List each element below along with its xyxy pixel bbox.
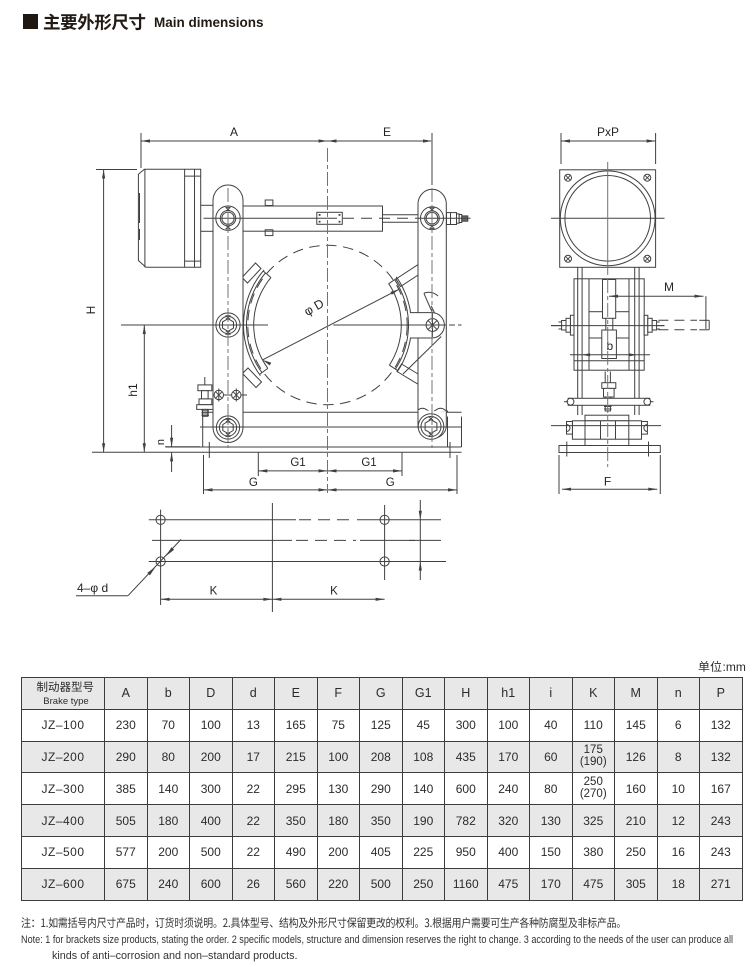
svg-text:G1: G1 [290, 457, 305, 469]
svg-text:G: G [249, 477, 258, 489]
svg-text:K: K [210, 586, 218, 598]
svg-text:H: H [84, 306, 98, 315]
svg-text:φ D: φ D [302, 296, 327, 318]
svg-text:G: G [386, 477, 395, 489]
svg-text:K: K [330, 586, 338, 598]
svg-text:F: F [604, 475, 611, 489]
svg-text:A: A [230, 125, 238, 139]
svg-text:n: n [155, 439, 167, 445]
svg-text:Brake type: Brake type [43, 696, 88, 707]
svg-text:G1: G1 [361, 457, 376, 469]
svg-text:h1: h1 [126, 383, 140, 397]
svg-text:PxP: PxP [597, 125, 619, 139]
svg-text:Main dimensions: Main dimensions [154, 15, 264, 30]
svg-text:M: M [664, 280, 674, 294]
svg-text:E: E [383, 125, 391, 139]
svg-text:4–φ d: 4–φ d [77, 581, 108, 595]
svg-text::mm: :mm [723, 660, 746, 674]
